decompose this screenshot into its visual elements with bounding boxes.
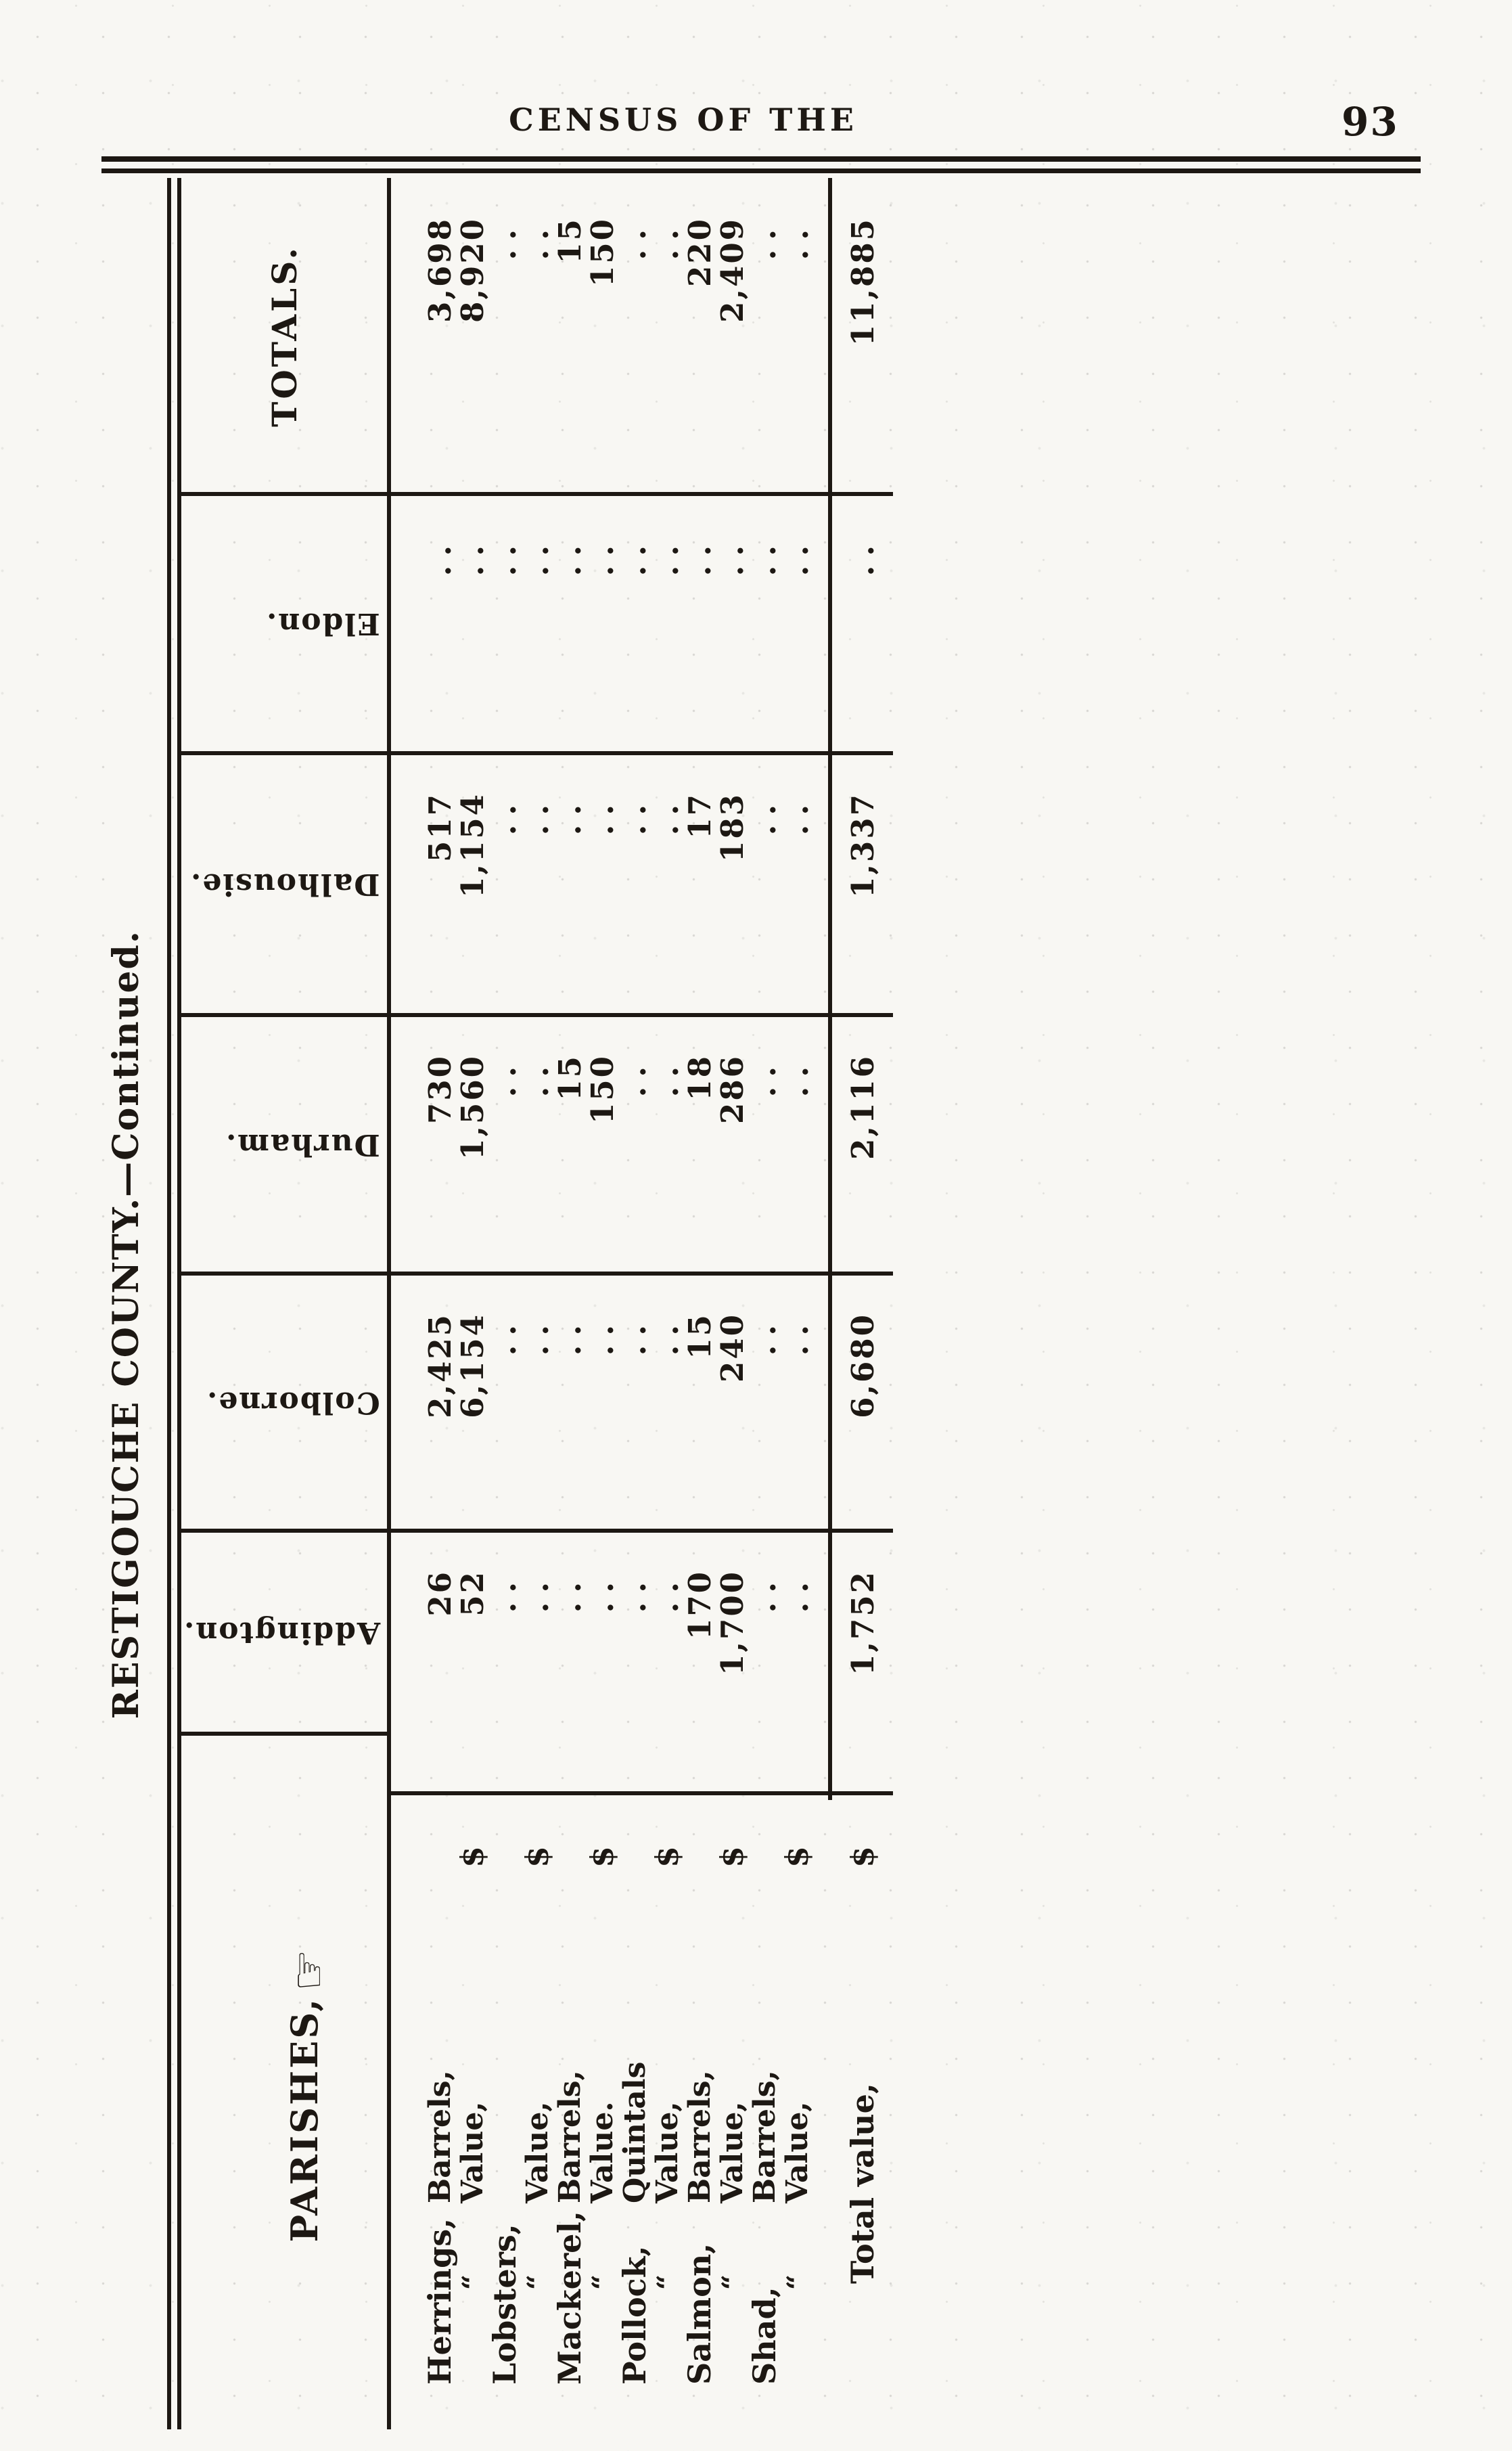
column-header-dalhousie: Dalhousie.: [181, 753, 387, 1015]
dollar-sign: $: [649, 1846, 685, 1868]
fish-name: Salmon,: [681, 2203, 718, 2385]
unit-label: Quintals: [618, 2062, 652, 2203]
fish-name: Lobsters,: [486, 2203, 523, 2385]
cell-dalhousie: ..: [521, 753, 553, 1015]
total-row-label: Total value, $: [832, 1793, 893, 2429]
row-label: Lobsters,: [488, 1793, 521, 2429]
cell-addington: ..: [618, 1531, 651, 1793]
table-row-mackerel-value: “ Value. $ .. .. 150 .. .. 150: [586, 178, 618, 2429]
page-number: 93: [1342, 99, 1399, 145]
cell-dalhousie: ..: [781, 753, 813, 1015]
row-label: “ Value, $: [521, 1793, 553, 2429]
cell-addington: ..: [586, 1531, 618, 1793]
cell-eldon: ..: [781, 494, 813, 753]
unit-label: Value,: [455, 2101, 490, 2203]
cell-addington: 1,700: [716, 1531, 748, 1793]
table-row-salmon-barrels: Salmon, Barrels, 170 15 18 17 .. 220: [683, 178, 716, 2429]
table-row-pollock-quintals: Pollock, Quintals .. .. .. .. .. ..: [618, 178, 651, 2429]
cell-addington: ..: [521, 1531, 553, 1793]
cell-dalhousie: ..: [553, 753, 586, 1015]
cell-totals: ..: [488, 178, 521, 494]
total-cell-addington: 1,752: [832, 1531, 893, 1793]
cell-colborne: 2,425: [423, 1274, 456, 1531]
column-header-totals: TOTALS.: [181, 178, 387, 494]
column-header-label: Addington.: [183, 1617, 380, 1647]
column-header-label: TOTALS.: [265, 245, 304, 427]
cell-totals: 3,698: [423, 178, 456, 494]
grid-line: [181, 1529, 893, 1533]
dollar-sign: $: [714, 1846, 750, 1868]
grid-line: [387, 1791, 893, 1795]
column-header-label: Dalhousie.: [189, 870, 380, 899]
census-table: PARISHES, ☞ Addington. Colborne. Durham.…: [167, 178, 893, 2429]
cell-addington: 52: [456, 1531, 488, 1793]
ditto-mark: “: [522, 2203, 553, 2385]
cell-eldon: ..: [456, 494, 488, 753]
ditto-mark: “: [651, 2203, 683, 2385]
cell-dalhousie: ..: [488, 753, 521, 1015]
cell-addington: ..: [748, 1531, 781, 1793]
pointing-hand-icon: ☞: [291, 1949, 327, 1992]
cell-eldon: ..: [716, 494, 748, 753]
cell-eldon: ..: [423, 494, 456, 753]
dollar-sign: $: [844, 1846, 881, 1868]
cell-totals: ..: [748, 178, 781, 494]
ditto-mark: “: [716, 2203, 748, 2385]
cell-eldon: ..: [683, 494, 716, 753]
unit-label: Value,: [715, 2101, 750, 2203]
cell-durham: ..: [651, 1015, 683, 1274]
cell-colborne: ..: [521, 1274, 553, 1531]
cell-colborne: ..: [651, 1274, 683, 1531]
unit-label: Barrels,: [423, 2070, 457, 2203]
grid-line: [828, 178, 832, 1800]
row-label: Salmon, Barrels,: [683, 1793, 716, 2429]
total-cell-eldon: ..: [832, 494, 893, 753]
dollar-sign: $: [454, 1846, 490, 1868]
fish-name: Mackerel,: [551, 2203, 588, 2385]
ditto-mark: “: [457, 2203, 488, 2385]
ditto-mark: “: [781, 2203, 813, 2385]
cell-durham: 15: [553, 1015, 586, 1274]
cell-durham: ..: [521, 1015, 553, 1274]
total-cell-grand: 11,885: [832, 178, 893, 494]
dollar-sign: $: [584, 1846, 620, 1868]
cell-addington: 170: [683, 1531, 716, 1793]
table-total-row: Total value, $ 1,752 6,680 2,116 1,337 .…: [832, 178, 893, 2429]
cell-durham: 1,560: [456, 1015, 488, 1274]
cell-colborne: ..: [586, 1274, 618, 1531]
cell-durham: ..: [488, 1015, 521, 1274]
fish-name: Herrings,: [421, 2203, 458, 2385]
cell-colborne: ..: [781, 1274, 813, 1531]
cell-addington: 26: [423, 1531, 456, 1793]
county-side-title: RESTIGOUCHE COUNTY.—Continued.: [97, 914, 154, 1735]
row-label: Shad, Barrels,: [748, 1793, 781, 2429]
table-row-mackerel-barrels: Mackerel, Barrels, .. .. 15 .. .. 15: [553, 178, 586, 2429]
cell-totals: 220: [683, 178, 716, 494]
unit-label: Value,: [780, 2101, 815, 2203]
grid-line: [181, 1272, 893, 1276]
table-row-shad-barrels: Shad, Barrels, .. .. .. .. .. ..: [748, 178, 781, 2429]
column-header-label: Colborne.: [206, 1387, 380, 1417]
table-row-salmon-value: “ Value, $ 1,700 240 286 183 .. 2,409: [716, 178, 748, 2429]
dollar-sign: $: [779, 1846, 815, 1868]
running-header: CENSUS OF THE: [509, 102, 858, 138]
column-header-label: Durham.: [225, 1129, 380, 1159]
cell-durham: 286: [716, 1015, 748, 1274]
cell-dalhousie: ..: [651, 753, 683, 1015]
table-row-lobsters: Lobsters, .. .. .. .. .. ..: [488, 178, 521, 2429]
cell-addington: ..: [553, 1531, 586, 1793]
table-body: Herrings, Barrels, 26 2,425 730 517 .. 3…: [387, 178, 832, 2429]
dollar-sign: $: [519, 1846, 555, 1868]
cell-durham: 150: [586, 1015, 618, 1274]
ditto-mark: “: [587, 2203, 618, 2385]
parishes-label: PARISHES,: [283, 1997, 326, 2243]
cell-eldon: ..: [748, 494, 781, 753]
cell-dalhousie: 17: [683, 753, 716, 1015]
row-label: “ Value, $: [651, 1793, 683, 2429]
cell-durham: ..: [781, 1015, 813, 1274]
column-header-addington: Addington.: [181, 1531, 387, 1734]
cell-totals: ..: [521, 178, 553, 494]
unit-label: Barrels,: [553, 2070, 587, 2203]
cell-colborne: 6,154: [456, 1274, 488, 1531]
cell-eldon: ..: [586, 494, 618, 753]
cell-colborne: ..: [488, 1274, 521, 1531]
cell-durham: 730: [423, 1015, 456, 1274]
unit-label: Value.: [585, 2101, 620, 2203]
cell-dalhousie: 1,154: [456, 753, 488, 1015]
cell-addington: ..: [488, 1531, 521, 1793]
row-label: Pollock, Quintals: [618, 1793, 651, 2429]
table-row-pollock-value: “ Value, $ .. .. .. .. .. ..: [651, 178, 683, 2429]
table-header-row: PARISHES, ☞ Addington. Colborne. Durham.…: [181, 178, 387, 2429]
cell-eldon: ..: [521, 494, 553, 753]
cell-addington: ..: [651, 1531, 683, 1793]
cell-eldon: ..: [553, 494, 586, 753]
cell-colborne: ..: [553, 1274, 586, 1531]
cell-totals: ..: [781, 178, 813, 494]
cell-durham: 18: [683, 1015, 716, 1274]
column-header-colborne: Colborne.: [181, 1274, 387, 1531]
table-row-herrings-barrels: Herrings, Barrels, 26 2,425 730 517 .. 3…: [423, 178, 456, 2429]
table-top-double-rule: [167, 178, 181, 2429]
row-label: Herrings, Barrels,: [423, 1793, 456, 2429]
unit-label: Barrels,: [748, 2070, 782, 2203]
cell-totals: 150: [586, 178, 618, 494]
unit-label: Value,: [650, 2101, 685, 2203]
total-cell-dalhousie: 1,337: [832, 753, 893, 1015]
cell-eldon: ..: [618, 494, 651, 753]
cell-totals: 8,920: [456, 178, 488, 494]
unit-label: Value,: [520, 2101, 555, 2203]
cell-colborne: ..: [618, 1274, 651, 1531]
column-header-label: Eldon.: [265, 609, 380, 639]
cell-colborne: ..: [748, 1274, 781, 1531]
total-cell-durham: 2,116: [832, 1015, 893, 1274]
cell-durham: ..: [618, 1015, 651, 1274]
column-header-eldon: Eldon.: [181, 494, 387, 753]
fish-name: Pollock,: [616, 2203, 653, 2385]
census-table-rotated-inner: PARISHES, ☞ Addington. Colborne. Durham.…: [167, 178, 893, 2429]
row-label: “ Value. $: [586, 1793, 618, 2429]
parishes-header-cell: PARISHES, ☞: [181, 1734, 387, 2429]
cell-addington: ..: [781, 1531, 813, 1793]
table-row-shad-value: “ Value, $ .. .. .. .. .. ..: [781, 178, 813, 2429]
cell-totals: ..: [651, 178, 683, 494]
cell-dalhousie: 183: [716, 753, 748, 1015]
cell-colborne: 240: [716, 1274, 748, 1531]
total-cell-colborne: 6,680: [832, 1274, 893, 1531]
fish-name: Shad,: [746, 2203, 783, 2385]
scanned-census-page: { "page": { "running_header": "CENSUS OF…: [0, 0, 1512, 2451]
table-row-lobsters-value: “ Value, $ .. .. .. .. .. ..: [521, 178, 553, 2429]
unit-label: Barrels,: [683, 2070, 717, 2203]
cell-dalhousie: ..: [618, 753, 651, 1015]
cell-dalhousie: ..: [748, 753, 781, 1015]
cell-dalhousie: 517: [423, 753, 456, 1015]
cell-totals: 2,409: [716, 178, 748, 494]
row-label: Mackerel, Barrels,: [553, 1793, 586, 2429]
double-rule: [101, 156, 1421, 173]
grid-line: [181, 1013, 893, 1017]
cell-totals: 15: [553, 178, 586, 494]
row-label: “ Value, $: [716, 1793, 748, 2429]
grid-line: [181, 1732, 387, 1736]
column-header-durham: Durham.: [181, 1015, 387, 1274]
grid-line: [181, 751, 893, 755]
cell-eldon: ..: [488, 494, 521, 753]
cell-eldon: ..: [651, 494, 683, 753]
table-row-herrings-value: “ Value, $ 52 6,154 1,560 1,154 .. 8,920: [456, 178, 488, 2429]
cell-totals: ..: [618, 178, 651, 494]
county-side-title-text: RESTIGOUCHE COUNTY.—Continued.: [106, 930, 147, 1719]
row-label: “ Value, $: [781, 1793, 813, 2429]
cell-dalhousie: ..: [586, 753, 618, 1015]
total-value-label: Total value,: [844, 2083, 881, 2284]
row-label: “ Value, $: [456, 1793, 488, 2429]
cell-colborne: 15: [683, 1274, 716, 1531]
cell-durham: ..: [748, 1015, 781, 1274]
grid-line: [181, 492, 893, 496]
